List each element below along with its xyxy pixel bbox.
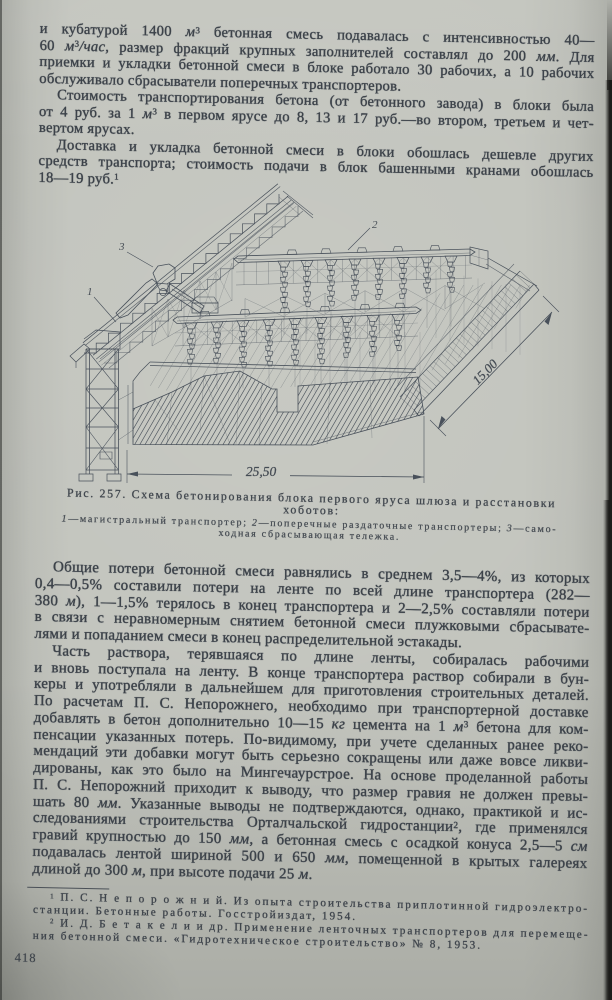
svg-text:2: 2: [372, 219, 378, 231]
svg-text:1: 1: [87, 286, 93, 298]
svg-text:25,50: 25,50: [246, 464, 277, 479]
svg-text:15,00: 15,00: [469, 356, 501, 388]
svg-text:3: 3: [118, 241, 125, 253]
